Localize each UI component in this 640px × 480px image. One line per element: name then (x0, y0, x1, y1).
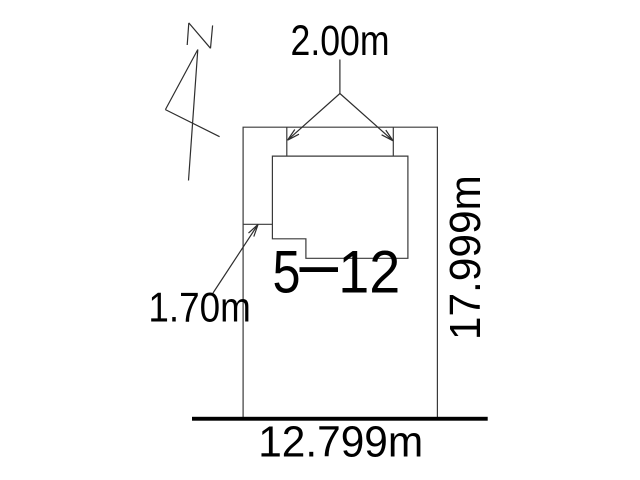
svg-text:12.799m: 12.799m (258, 418, 423, 467)
svg-text:17.999m: 17.999m (442, 175, 491, 340)
svg-text:2.00m: 2.00m (291, 18, 390, 65)
svg-text:5: 5 (272, 238, 300, 305)
svg-text:1.70m: 1.70m (148, 286, 250, 331)
svg-text:12: 12 (338, 240, 400, 306)
